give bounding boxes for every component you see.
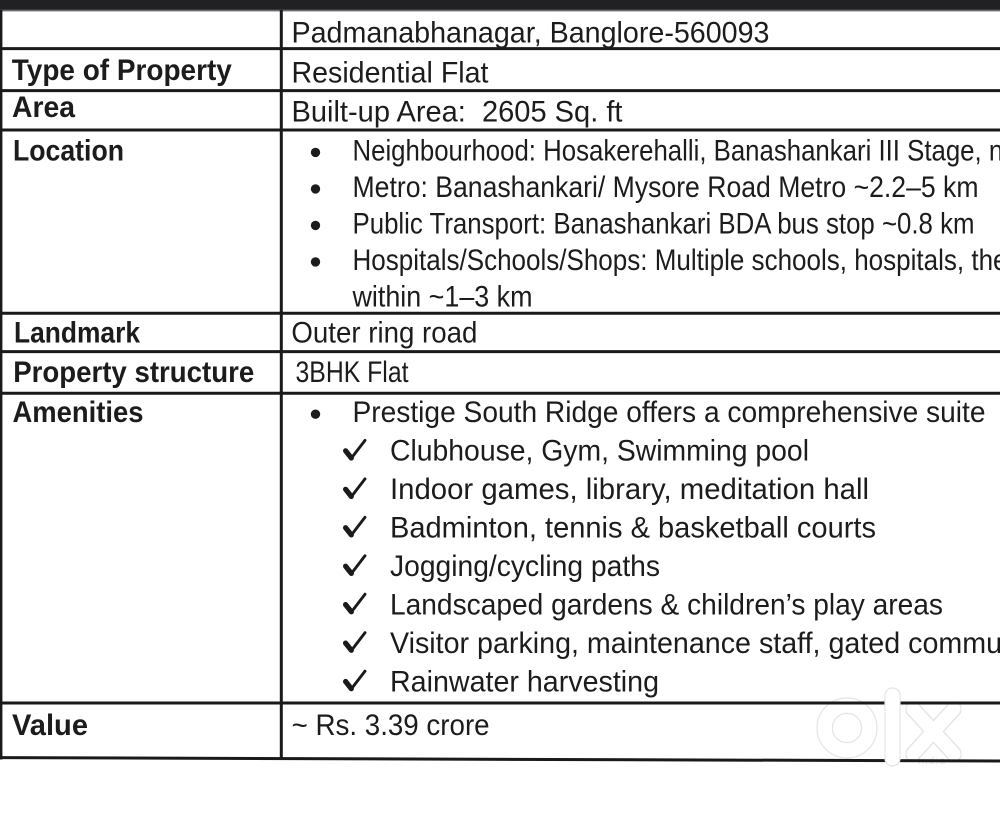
- svg-text:Neighbourhood: Hosakerehalli,: Neighbourhood: Hosakerehalli, Banashanka…: [353, 134, 1000, 167]
- svg-text:Indoor games, library, meditat: Indoor games, library, meditation hall: [390, 473, 869, 506]
- svg-text:Amenities: Amenities: [13, 396, 144, 429]
- svg-text:Residential Flat: Residential Flat: [292, 57, 490, 90]
- svg-text:Jogging/cycling paths: Jogging/cycling paths: [390, 550, 660, 583]
- svg-text:Landmark: Landmark: [14, 316, 140, 349]
- svg-text:within ~1–3 km: within ~1–3 km: [352, 280, 533, 313]
- svg-text:Rainwater harvesting: Rainwater harvesting: [390, 665, 659, 698]
- svg-text:Public Transport: Banashankari: Public Transport: Banashankari BDA bus s…: [353, 207, 975, 240]
- svg-text:Badminton, tennis & basketball: Badminton, tennis & basketball courts: [390, 512, 876, 545]
- svg-text:3BHK Flat: 3BHK Flat: [296, 356, 410, 389]
- svg-text:Hospitals/Schools/Shops: Multi: Hospitals/Schools/Shops: Multiple school…: [353, 244, 1000, 277]
- svg-text:Landscaped gardens & children’: Landscaped gardens & children’s play are…: [390, 588, 943, 621]
- svg-text:Property structure: Property structure: [13, 356, 254, 389]
- svg-text:Type of Property: Type of Property: [12, 54, 232, 87]
- svg-text:Prestige South Ridge offers a: Prestige South Ridge offers a comprehens…: [353, 396, 986, 429]
- svg-text:~ Rs. 3.39 crore: ~ Rs. 3.39 crore: [292, 709, 490, 742]
- svg-text:Visitor parking, maintenance s: Visitor parking, maintenance staff, gate…: [390, 627, 1000, 660]
- svg-text:Built-up Area: 2605 Sq. ft: Built-up Area: 2605 Sq. ft: [292, 96, 624, 129]
- svg-text:Value: Value: [12, 709, 88, 742]
- svg-text:Clubhouse, Gym, Swimming pool: Clubhouse, Gym, Swimming pool: [390, 435, 809, 468]
- svg-text:Outer ring road: Outer ring road: [291, 316, 477, 349]
- svg-text:Padmanabhanagar, Banglore-5600: Padmanabhanagar, Banglore-560093: [292, 16, 770, 49]
- svg-text:Metro: Banashankari/ Mysore Ro: Metro: Banashankari/ Mysore Road Metro ~…: [353, 171, 979, 204]
- svg-text:Location: Location: [13, 134, 124, 167]
- svg-text:Area: Area: [12, 91, 75, 124]
